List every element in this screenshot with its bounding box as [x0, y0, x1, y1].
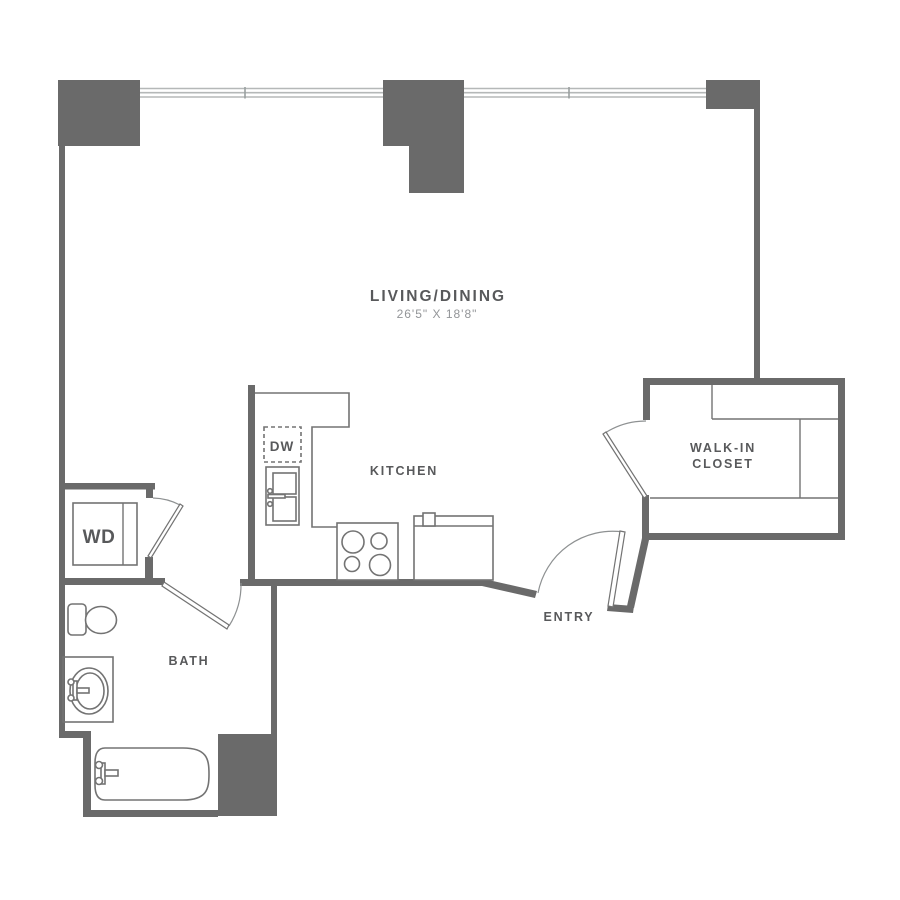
- wd-door-arc-icon: [153, 498, 180, 505]
- bath-right-wall: [271, 585, 277, 735]
- column-top-left: [58, 80, 140, 146]
- dishwasher-label: DW: [270, 439, 295, 454]
- utility-shaft-block: [218, 734, 277, 816]
- closet-top-wall: [643, 378, 845, 385]
- tub-faucet-arm-icon: [105, 770, 118, 776]
- laundry-fixtures: WD: [73, 503, 137, 565]
- column-top-middle: [383, 80, 464, 193]
- kitchen-label: KITCHEN: [370, 464, 438, 478]
- room-labels: LIVING/DINING 26'5" X 18'8" KITCHEN WALK…: [169, 288, 757, 668]
- closet-right-wall: [838, 378, 845, 540]
- bath-door-leaf-icon: [162, 582, 229, 629]
- tub-faucet-knob-icon: [96, 778, 103, 785]
- closet-door-arc-icon: [605, 421, 646, 433]
- entry-diagonal-wall: [627, 538, 649, 608]
- closet-bottom-wall: [643, 533, 845, 540]
- wd-closet-top-wall: [59, 483, 155, 490]
- tub-alcove-left-wall: [83, 731, 91, 817]
- bath-door-arc-icon: [229, 583, 241, 626]
- closet-door-stub-bottom: [642, 495, 649, 540]
- floor-plan: DW WD: [0, 0, 900, 900]
- floor-plan-page: DW WD: [0, 0, 900, 900]
- sink-faucet-arm-icon: [77, 688, 89, 693]
- wd-door-leaf-icon: [148, 504, 183, 558]
- kitchen-fixtures: DW: [255, 393, 493, 580]
- tub-faucet-knob-icon: [96, 762, 103, 769]
- entry-door-leaf-icon: [608, 531, 625, 607]
- kitchen-bottom-wall: [240, 579, 537, 598]
- entry-door-arc-icon: [538, 531, 623, 593]
- living-dining-label: LIVING/DINING: [370, 288, 506, 305]
- walk-in-closet-label-line1: WALK-IN: [690, 441, 756, 455]
- entry-label: ENTRY: [544, 610, 595, 624]
- living-dining-dimensions: 26'5" X 18'8": [397, 307, 478, 321]
- toilet-tank-icon: [68, 604, 86, 635]
- sink-faucet-knob-icon: [68, 695, 74, 701]
- wall-right: [754, 105, 760, 381]
- closet-door-leaf-icon: [603, 432, 647, 498]
- refrigerator-handle-icon: [423, 513, 435, 526]
- kitchen-left-wall: [248, 385, 255, 586]
- closet-door-stub-top: [643, 378, 650, 420]
- bath-label: BATH: [169, 654, 210, 668]
- oven-handle-icon: [268, 495, 285, 499]
- column-top-right: [706, 80, 760, 109]
- wd-closet-door-stub-top: [146, 489, 153, 498]
- sink-faucet-knob-icon: [68, 679, 74, 685]
- washer-dryer-label: WD: [83, 527, 116, 548]
- bath-top-wall-left: [59, 578, 165, 585]
- toilet-bowl-icon: [86, 607, 117, 634]
- tub-alcove-bottom-wall: [83, 810, 218, 817]
- walk-in-closet-label-line2: CLOSET: [692, 457, 754, 471]
- wall-left: [59, 145, 65, 738]
